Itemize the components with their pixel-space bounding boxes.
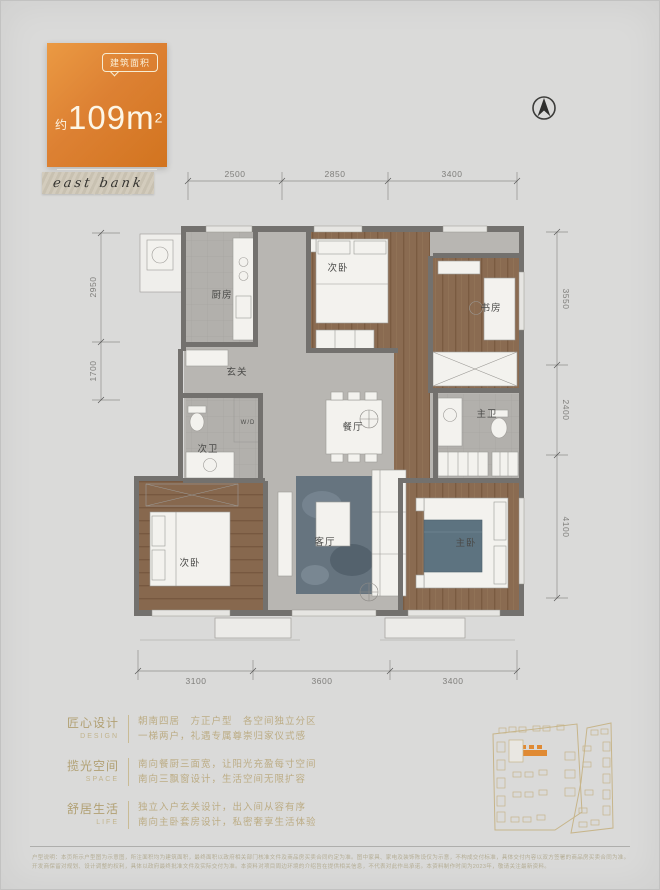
dim-top-1: 2500 [225,169,246,179]
utility-balcony [140,234,182,292]
badge-tag: 建筑面积 [102,53,158,72]
feature-space-line1: 南向餐厨三面宽，让阳光充盈每寸空间 [138,757,317,772]
dim-bottom-2: 3600 [312,676,333,686]
feature-life-line2: 南向主卧套房设计，私密奢享生活体验 [138,815,317,830]
site-plan-highlight-unit [509,740,547,762]
room-label-foyer: 玄关 [226,366,247,378]
floor-plan: 厨房 次卧 书房 玄关 次卫 W/D 餐厅 主卫 客厅 主卧 次卧 [80,160,580,705]
room-label-bath2: 次卫 [197,443,218,455]
feature-design-line1: 朝南四居 方正户型 各空间独立分区 [138,714,317,729]
room-label-dining: 餐厅 [342,421,363,433]
dim-right-2: 2400 [561,400,571,421]
compass-north-icon [528,92,560,124]
feature-divider [128,758,129,786]
area-sup: 2 [155,110,163,126]
feature-design: 匠心设计 DESIGN 朝南四居 方正户型 各空间独立分区 一梯两户，礼遇专属尊… [55,714,405,744]
footer-divider [30,846,630,847]
dim-top-2: 2850 [325,169,346,179]
room-label-study: 书房 [480,302,501,314]
feature-life-sub: LIFE [55,819,119,826]
room-label-master-bedroom: 主卧 [455,537,476,549]
feature-life-title: 舒居生活 [55,800,119,817]
area-value: 约109m2 [55,99,162,137]
area-badge: 建筑面积 约109m2 ·四室两厅两卫· [47,43,167,167]
feature-design-line2: 一梯两户，礼遇专属尊崇归家仪式感 [138,729,317,744]
room-label-bedroom2-top: 次卧 [327,262,348,274]
feature-life-line1: 独立入户玄关设计，出入间从容有序 [138,800,317,815]
kitchen-counter [233,238,254,340]
dim-left-2: 1700 [88,361,98,382]
poster-page: 建筑面积 约109m2 ·四室两厅两卫· east bank [0,0,660,890]
feature-space-line2: 南向三飘窗设计，生活空间无限扩容 [138,772,317,787]
disclaimer-line2: 开发商保留对规划、设计调整的权利，具体以政府最终批准文件及实际交付为准。本资料对… [32,863,630,872]
area-number: 109m [68,99,155,136]
feature-design-title: 匠心设计 [55,714,119,731]
room-label-wd: W/D [241,420,256,426]
feature-space-title: 揽光空间 [55,757,119,774]
room-label-master-bath: 主卫 [476,408,497,420]
dim-bottom-3: 3400 [443,676,464,686]
feature-divider [128,801,129,829]
feature-space: 揽光空间 SPACE 南向餐厨三面宽，让阳光充盈每寸空间 南向三飘窗设计，生活空… [55,757,405,787]
disclaimer-text: 户型说明：本页所示户型图为示意图，所注面积均为建筑面积，最终面积以政府相关部门核… [32,854,630,872]
area-approx: 约 [55,118,67,132]
dim-bottom-1: 3100 [186,676,207,686]
bay-windows [140,618,515,640]
feature-design-sub: DESIGN [55,733,119,740]
site-key-plan [483,712,623,842]
dim-left-1: 2950 [88,277,98,298]
feature-life: 舒居生活 LIFE 独立入户玄关设计，出入间从容有序 南向主卧套房设计，私密奢享… [55,800,405,830]
room-label-living: 客厅 [314,536,335,548]
room-label-bedroom2-bottom: 次卧 [179,557,200,569]
dim-top-3: 3400 [442,169,463,179]
foyer-cabinet [186,350,228,366]
disclaimer-line1: 户型说明：本页所示户型图为示意图，所注面积均为建筑面积，最终面积以政府相关部门核… [32,854,630,863]
dim-right-1: 3550 [561,289,571,310]
room-label-kitchen: 厨房 [211,289,232,301]
feature-list: 匠心设计 DESIGN 朝南四居 方正户型 各空间独立分区 一梯两户，礼遇专属尊… [55,714,405,843]
feature-space-sub: SPACE [55,776,119,783]
dim-right-3: 4100 [561,517,571,538]
feature-divider [128,715,129,743]
tv-cabinet [278,492,292,576]
